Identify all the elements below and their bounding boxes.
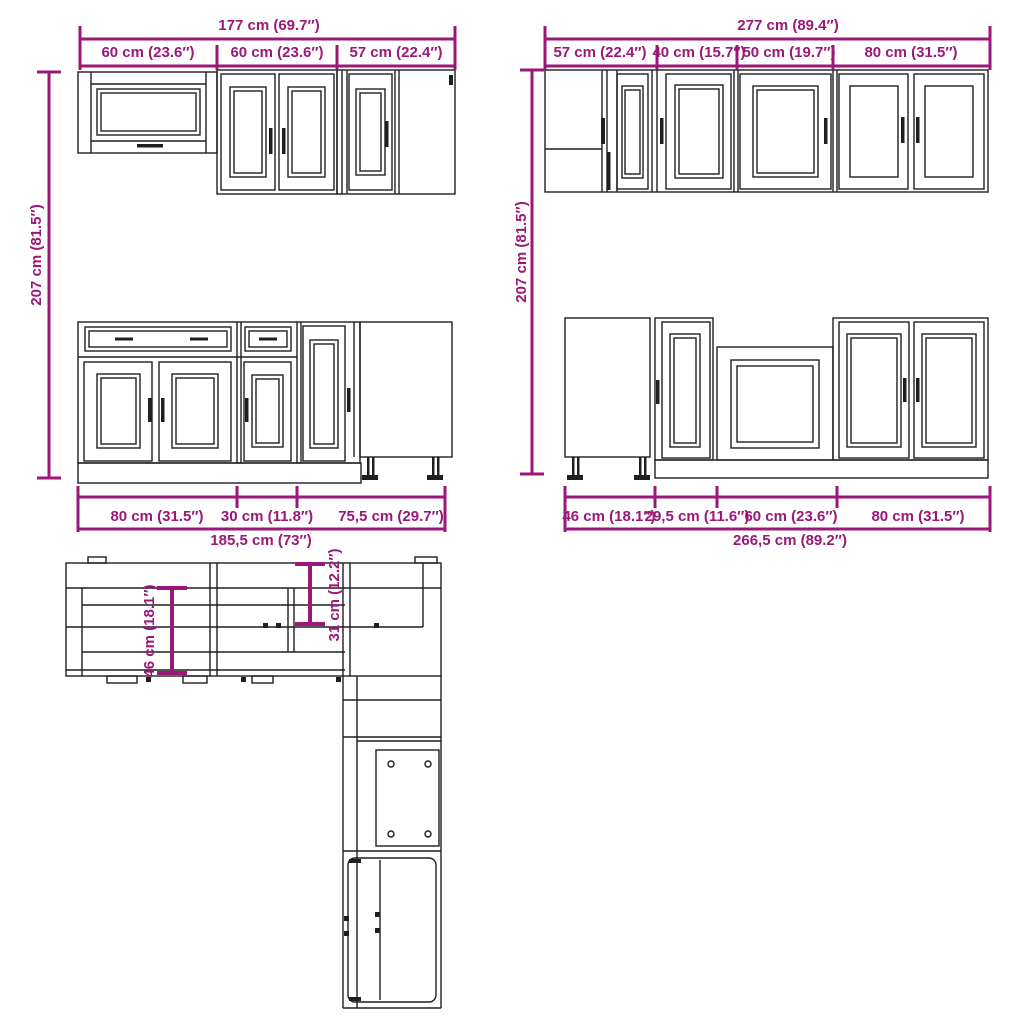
base-cabinets-left-drawing — [78, 322, 452, 483]
kitchen-dimension-diagram: 177 cm (69.7″) 60 cm (23.6″) 60 cm (23.6… — [0, 0, 1024, 1024]
dim-wall-right-seg-1: 57 cm (22.4″) — [553, 44, 646, 61]
dim-height-right: 207 cm (81.5″) — [513, 201, 530, 302]
dim-wall-right-seg-4: 80 cm (31.5″) — [864, 44, 957, 61]
dim-wall-right-seg-3: 50 cm (19.7″) — [742, 44, 835, 61]
wall-cabinets-right-drawing — [545, 70, 988, 192]
dim-base-right-total: 266,5 cm (89.2″) — [733, 532, 847, 549]
dim-base-left-seg-3: 75,5 cm (29.7″) — [338, 508, 444, 525]
dim-wall-left-seg-2: 60 cm (23.6″) — [230, 44, 323, 61]
dim-wall-left-total: 177 cm (69.7″) — [218, 17, 319, 34]
dim-base-left-seg-2: 30 cm (11.8″) — [221, 508, 313, 525]
corner-plan-view-drawing — [66, 557, 441, 1008]
dim-base-left-total: 185,5 cm (73″) — [210, 532, 311, 549]
dim-wall-left-seg-3: 57 cm (22.4″) — [349, 44, 442, 61]
dim-base-right-seg-1: 46 cm (18.1″) — [562, 508, 655, 525]
dim-base-right-seg-3: 60 cm (23.6″) — [744, 508, 837, 525]
dim-wall-right-seg-2: 40 cm (15.7″) — [652, 44, 745, 61]
dim-height-left: 207 cm (81.5″) — [28, 204, 45, 305]
wall-cabinets-left-drawing — [78, 70, 455, 194]
dim-base-left-seg-1: 80 cm (31.5″) — [110, 508, 203, 525]
dim-base-right-seg-4: 80 cm (31.5″) — [871, 508, 964, 525]
dim-plan-wall-depth: 31 cm (12.2″) — [326, 548, 343, 641]
dim-base-right-seg-2: 29,5 cm (11.6″) — [645, 508, 750, 525]
dim-wall-left-seg-1: 60 cm (23.6″) — [101, 44, 194, 61]
kitchen-dimension-diagram-page: 177 cm (69.7″) 60 cm (23.6″) 60 cm (23.6… — [0, 0, 1024, 1024]
dim-plan-base-depth: 46 cm (18.1″) — [141, 584, 158, 677]
dim-wall-right-total: 277 cm (89.4″) — [737, 17, 838, 34]
base-cabinets-right-drawing — [565, 318, 988, 480]
